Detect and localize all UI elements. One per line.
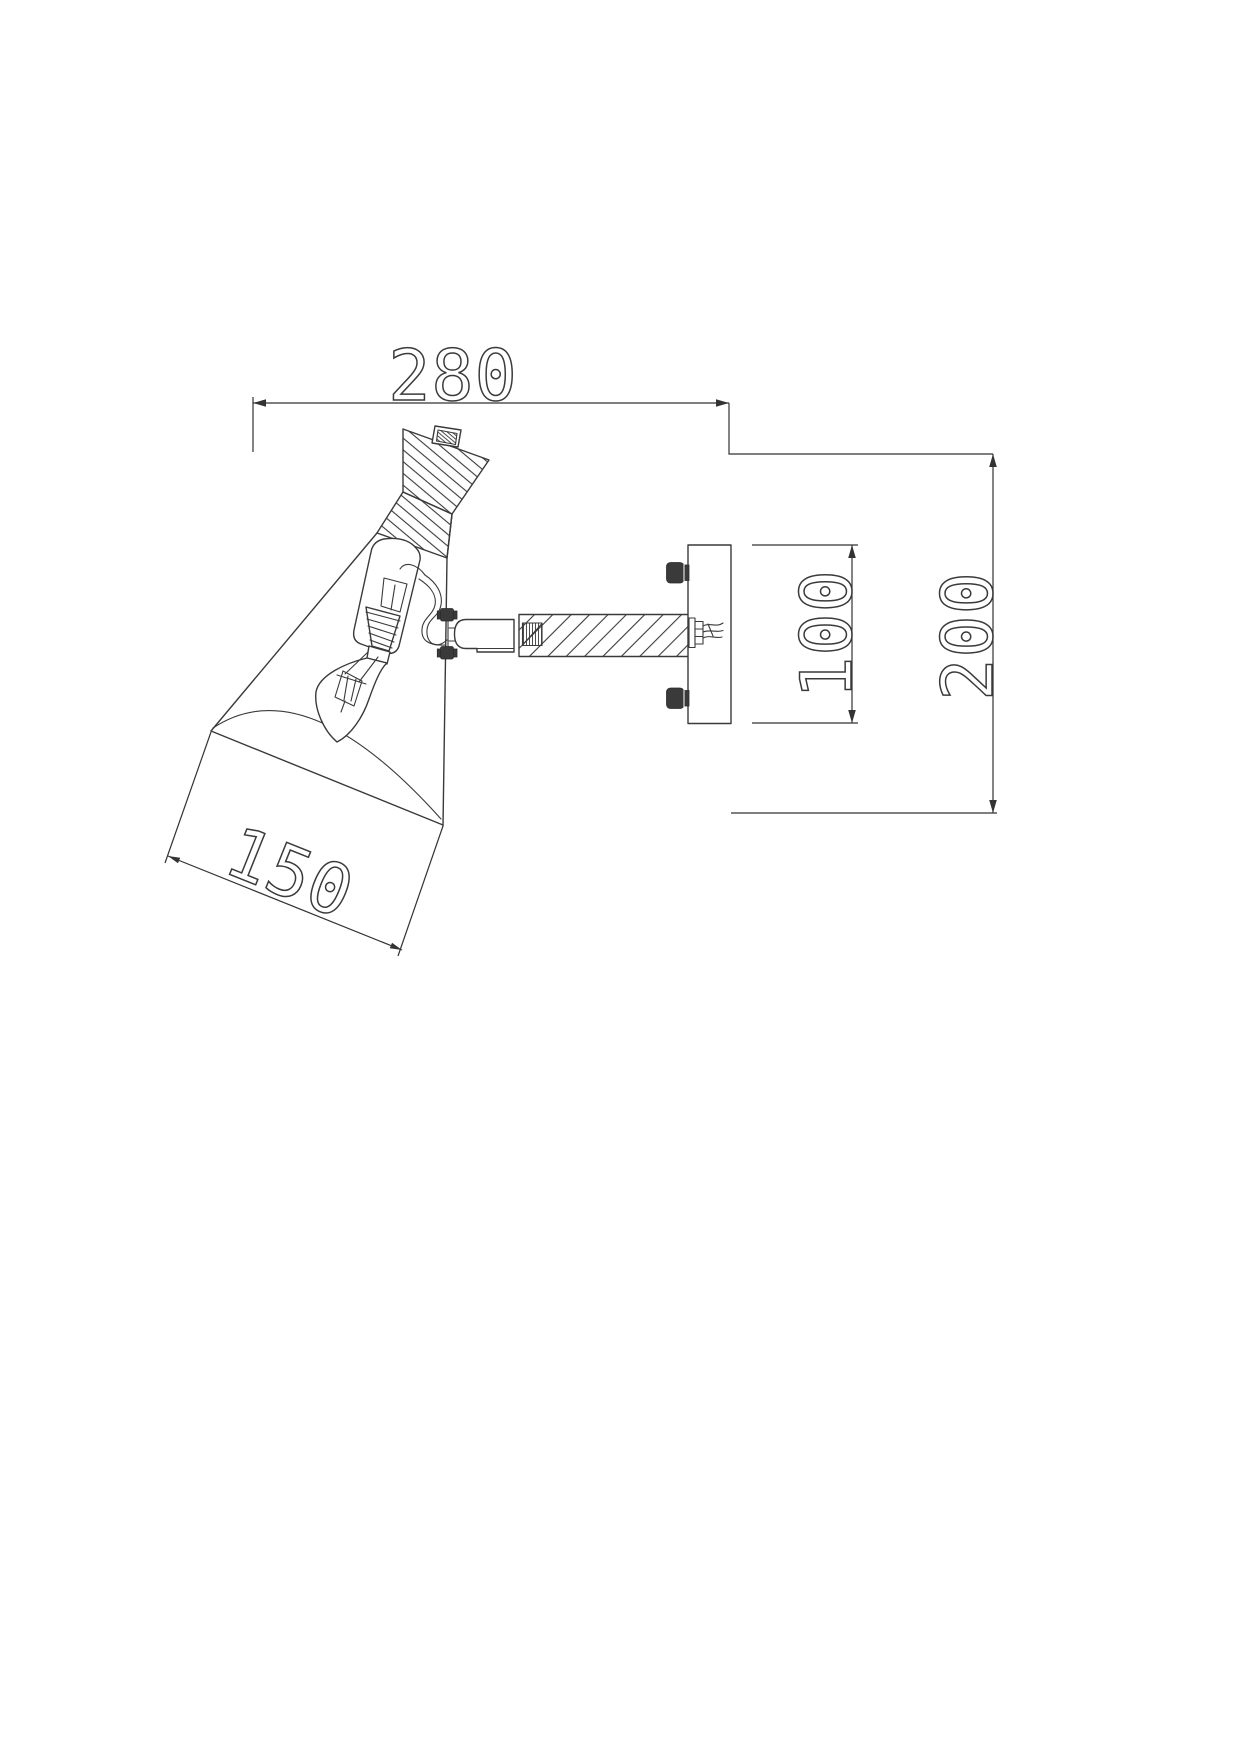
dim-plate-label: 100: [786, 569, 868, 698]
drawing-page: 280 200 100 150: [0, 0, 1241, 1754]
dim-width-arrow-right: [716, 399, 729, 407]
dim-width-extension-right-step: [729, 403, 993, 454]
dim-height-arrow-bottom: [989, 800, 997, 813]
dimension-shade-opening: 150: [165, 732, 443, 956]
threaded-arm-rod: [519, 615, 690, 657]
clamp-screw-bottom: [437, 647, 457, 660]
dim-shade-label: 150: [215, 811, 366, 935]
dim-width-label: 280: [388, 335, 517, 417]
dim-shade-extension-left: [165, 732, 211, 863]
dim-plate-arrow-bottom: [848, 710, 856, 723]
dimension-overall-width: 280: [253, 335, 993, 454]
dim-height-arrow-top: [989, 454, 997, 467]
mount-bolt-top: [667, 563, 690, 584]
dimension-backplate-height: 100: [752, 545, 868, 723]
dim-height-label: 200: [927, 571, 1009, 700]
dim-plate-arrow-top: [848, 545, 856, 558]
dim-shade-extension-right: [398, 826, 443, 956]
lamp-technical-drawing: 280 200 100 150: [0, 0, 1241, 1754]
shade-back-edge: [443, 514, 452, 826]
dimension-overall-height: 200: [731, 454, 1009, 813]
joint-cylinder: [455, 620, 515, 653]
dim-shade-arrow-left: [168, 856, 180, 863]
dim-width-arrow-left: [253, 399, 266, 407]
clamp-screw-top: [437, 609, 457, 622]
mount-bolt-bottom: [667, 688, 690, 709]
knurled-nut: [523, 623, 543, 646]
